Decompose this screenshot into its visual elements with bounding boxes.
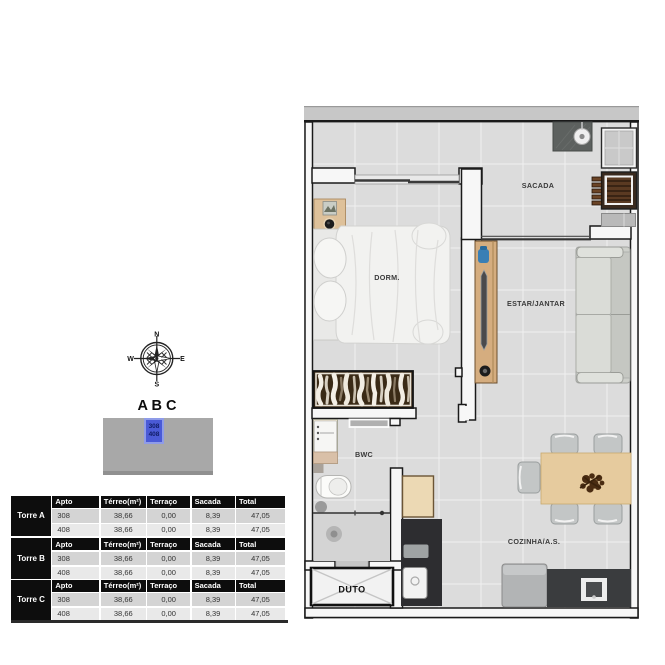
svg-text:N: N (154, 332, 159, 339)
svg-text:W: W (127, 356, 134, 363)
svg-text:DORM.: DORM. (374, 273, 399, 282)
svg-text:COZINHA/A.S.: COZINHA/A.S. (508, 537, 560, 546)
svg-text:ESTAR/JANTAR: ESTAR/JANTAR (507, 299, 566, 308)
svg-text:E: E (180, 356, 185, 363)
svg-text:BWC: BWC (355, 450, 373, 459)
svg-text:S: S (154, 382, 159, 389)
svg-text:DUTO: DUTO (338, 585, 365, 595)
svg-text:SACADA: SACADA (522, 181, 555, 190)
